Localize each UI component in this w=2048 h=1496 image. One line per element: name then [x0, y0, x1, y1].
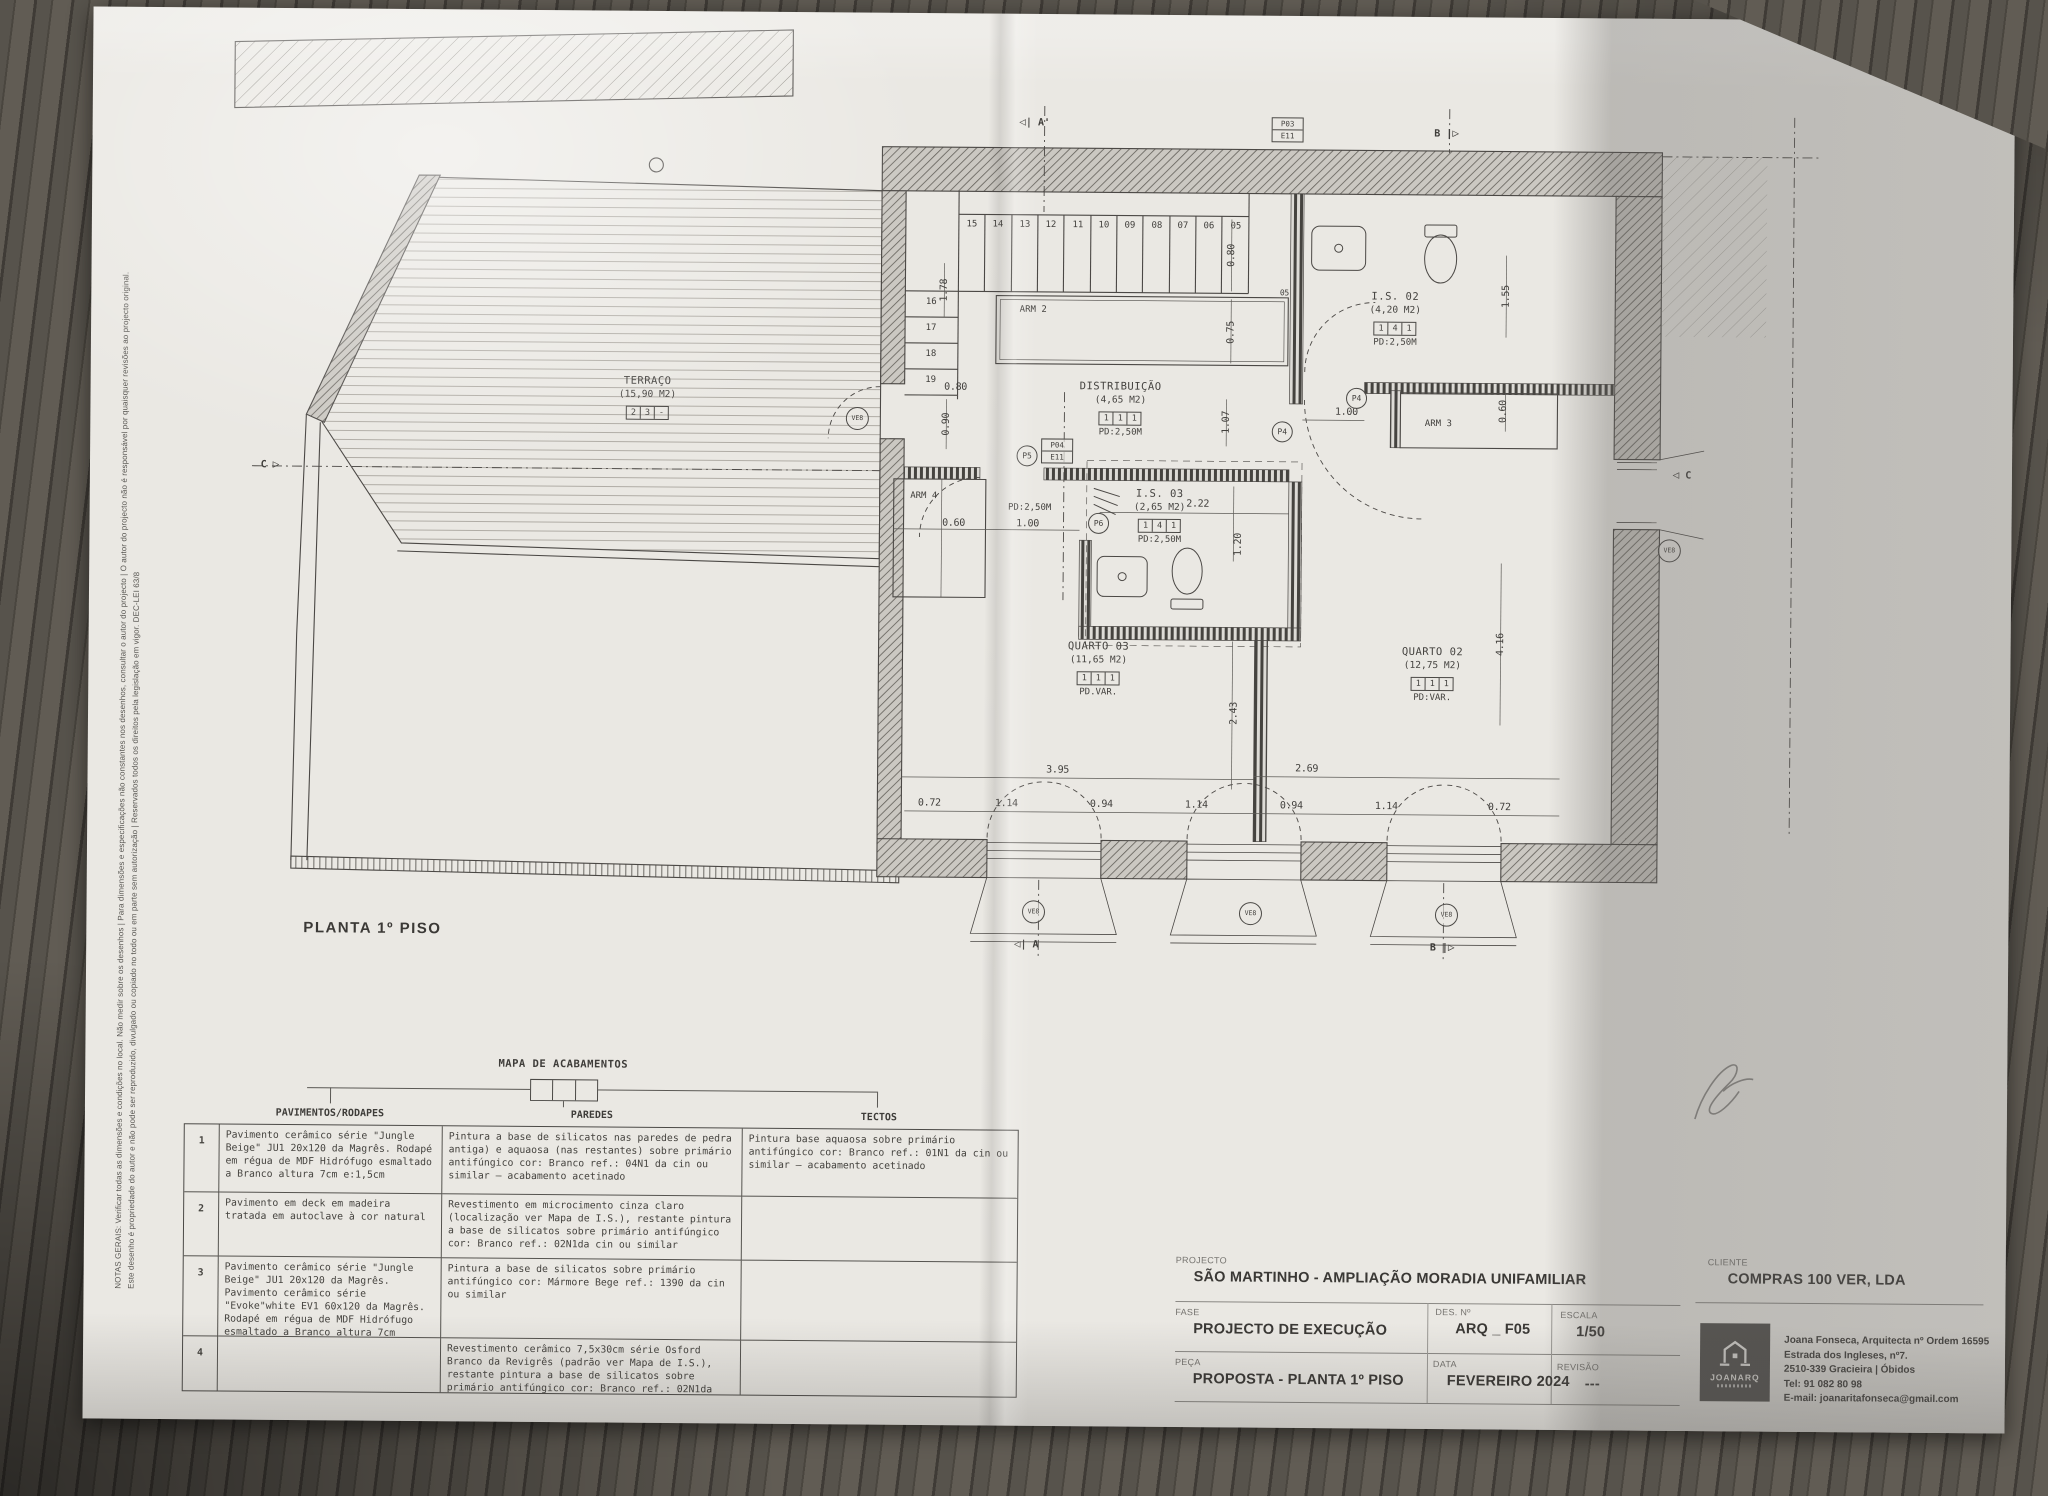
- cell-tectos: [741, 1341, 1016, 1397]
- row-number: 2: [184, 1192, 220, 1256]
- finishes-col-pavimentos: PAVIMENTOS/RODAPES: [276, 1107, 384, 1119]
- paper-sheet: NOTAS GERAIS: Verificar todas as dimensõ…: [82, 6, 2015, 1433]
- cell-paredes: Revestimento cerâmico 7,5x30cm série Osf…: [441, 1338, 741, 1394]
- dim-0.60-arm3: 0.60: [1498, 400, 1509, 423]
- tag-p04-e11: P04E11: [1041, 438, 1073, 463]
- tag-ve8: VE8: [1658, 539, 1681, 562]
- dim-1.07: 1.07: [1221, 411, 1232, 434]
- stair-tread-number: 07: [1177, 221, 1188, 231]
- titleblock-escala: ESCALA 1/50: [1560, 1310, 1605, 1340]
- row-number: 4: [183, 1336, 218, 1390]
- section-marker-b-top: B |▷: [1434, 127, 1459, 140]
- stair-tread-number: 13: [1019, 220, 1030, 230]
- finishes-title: MAPA DE ACABAMENTOS: [498, 1058, 628, 1071]
- stair-tread-number: 09: [1124, 221, 1135, 231]
- stair-tread-number: 15: [966, 219, 977, 229]
- revisao-value: ---: [1585, 1376, 1600, 1392]
- tag-ve8: VE8: [846, 407, 869, 430]
- contact-line: Estrada dos Ingleses, nº7.: [1784, 1348, 1994, 1364]
- stair-tread-number: 19: [925, 375, 936, 385]
- section-marker-a-bottom: ◁| A: [1014, 937, 1039, 950]
- dim-bottom-0: 0.72: [918, 797, 941, 808]
- dim-4.16: 4.16: [1495, 633, 1506, 656]
- titleblock-fase: FASE PROJECTO DE EXECUÇÃO: [1175, 1307, 1387, 1339]
- cell-pavimentos: Pavimento cerâmico série "Jungle Beige" …: [218, 1256, 442, 1338]
- closet-label-arm3: ARM 3: [1425, 419, 1452, 429]
- finish-codes: 111: [1099, 411, 1142, 425]
- titleblock-des: DES. Nº ARQ _ F05: [1435, 1307, 1530, 1338]
- stair-tread-number: 08: [1151, 221, 1162, 231]
- cell-pavimentos: Pavimento em deck em madeira tratada em …: [219, 1192, 442, 1258]
- plan-caption: PLANTA 1º PISO: [303, 919, 441, 937]
- des-value: ARQ _ F05: [1455, 1321, 1530, 1338]
- room-label-distribuicao: DISTRIBUIÇÃO (4,65 M2) 111 PD:2,50M: [1079, 380, 1161, 438]
- fase-value: PROJECTO DE EXECUÇÃO: [1193, 1321, 1387, 1339]
- tag-p4: P4: [1272, 421, 1293, 442]
- section-marker-a-top: ◁| A': [1019, 115, 1050, 128]
- finishes-col-paredes: PAREDES: [571, 1110, 613, 1121]
- dim-1.00-arm4: 1.00: [1016, 518, 1039, 529]
- closet-label-arm2: ARM 2: [1020, 305, 1047, 315]
- tag-p03-e11: P03E11: [1272, 117, 1304, 142]
- logo-tagline: [1717, 1384, 1753, 1387]
- architect-contact: Joana Fonseca, Arquitecta nº Ordem 16595…: [1784, 1334, 1995, 1408]
- dim-bottom-6: 0.72: [1488, 802, 1511, 813]
- cell-tectos: [742, 1197, 1017, 1263]
- client-name: COMPRAS 100 VER, LDA: [1728, 1271, 1906, 1288]
- stair-tread-number: 11: [1072, 220, 1083, 230]
- signature: [1665, 1053, 1786, 1149]
- titleblock-peca: PEÇA PROPOSTA - PLANTA 1º PISO: [1175, 1357, 1404, 1389]
- finishes-connector: [330, 1087, 331, 1103]
- dim-1.78: 1.78: [939, 279, 950, 302]
- finishes-connector: [877, 1092, 878, 1108]
- finish-codes: 141: [1374, 322, 1417, 336]
- dim-3.95: 3.95: [1046, 764, 1069, 775]
- data-value: FEVEREIRO 2024: [1447, 1373, 1570, 1390]
- room-label-quarto03: QUARTO 03 (11,65 M2) 111 PD.VAR.: [1067, 640, 1129, 697]
- row-number: 1: [184, 1124, 220, 1192]
- dim-bottom-3: 1.14: [1185, 800, 1208, 811]
- tag-ve8: VE8: [1239, 902, 1262, 925]
- finish-codes: 141: [1138, 519, 1181, 533]
- dim-0.90: 0.90: [941, 413, 952, 436]
- tag-p5: P5: [1016, 445, 1037, 466]
- peca-value: PROPOSTA - PLANTA 1º PISO: [1193, 1371, 1404, 1389]
- house-icon: [1715, 1338, 1755, 1370]
- dim-0.80-stair: 0.80: [1226, 244, 1237, 267]
- drawing-layer: NOTAS GERAIS: Verificar todas as dimensõ…: [82, 6, 2015, 1433]
- dim-bottom-4: 0.94: [1280, 800, 1303, 811]
- cell-tectos: Pintura base aquaosa sobre primário anti…: [742, 1129, 1018, 1199]
- stair-tread-number: 16: [926, 297, 937, 307]
- photo-of-floorplan: { "colors":{"wood":"#4a463f","paper":"#e…: [0, 0, 2048, 1496]
- finishes-legend-icon: [530, 1079, 598, 1102]
- cell-paredes: Pintura a base de silicatos nas paredes …: [442, 1126, 743, 1196]
- room-label-is03: I.S. 03 (2,65 M2) 141 PD:2,50M: [1134, 488, 1186, 545]
- dim-bottom-2: 0.94: [1090, 799, 1113, 810]
- room-label-quarto02: QUARTO 02 (12,75 M2) 111 PD:VAR.: [1401, 646, 1463, 703]
- tag-p6: P6: [1088, 513, 1109, 534]
- stair-tread-number: 17: [926, 323, 937, 333]
- stair-tread-number: 06: [1203, 221, 1214, 231]
- room-label-is02: I.S. 02 (4,20 M2) 141 PD:2,50M: [1369, 291, 1421, 348]
- dim-0.60-arm4: 0.60: [942, 518, 965, 529]
- finish-codes: 111: [1411, 677, 1454, 691]
- closet-label-arm4: ARM 4: [910, 491, 937, 501]
- dim-1.55: 1.55: [1501, 285, 1512, 308]
- escala-value: 1/50: [1576, 1324, 1605, 1340]
- contact-line: 2510-339 Gracieira | Óbidos: [1784, 1363, 1994, 1379]
- stair-tread-number: 10: [1098, 220, 1109, 230]
- finish-codes: 23-: [626, 406, 669, 420]
- joanarq-logo: JOANARQ: [1700, 1323, 1771, 1402]
- cell-paredes: Revestimento em microcimento cinza claro…: [442, 1194, 742, 1260]
- tag-ve8: VE8: [1435, 904, 1458, 927]
- cell-pavimentos: [218, 1336, 441, 1392]
- titleblock-revisao: REVISÃO ---: [1557, 1362, 1600, 1392]
- dim-2.69: 2.69: [1295, 763, 1318, 774]
- section-marker-c-left: C ▷: [261, 457, 280, 470]
- dim-0.80-door: 0.80: [944, 382, 967, 393]
- logo-wordmark: JOANARQ: [1710, 1372, 1760, 1382]
- stair-tread-number: 14: [992, 220, 1003, 230]
- dim-0.75: 0.75: [1225, 321, 1236, 344]
- room-label-terraco: TERRAÇO (15,90 M2) 23-: [619, 375, 677, 420]
- stair-tread-number: 12: [1045, 220, 1056, 230]
- titleblock-projecto: PROJECTO SÃO MARTINHO - AMPLIAÇÃO MORADI…: [1176, 1255, 1587, 1288]
- finish-codes: 111: [1077, 671, 1120, 685]
- dim-2.22: 2.22: [1186, 499, 1209, 510]
- cell-tectos: [741, 1261, 1017, 1343]
- finishes-col-tectos: TECTOS: [861, 1112, 897, 1123]
- contact-line: Tel: 91 082 80 98: [1784, 1377, 1994, 1393]
- contact-line: Joana Fonseca, Arquitecta nº Ordem 16595: [1784, 1334, 1994, 1350]
- tag-p4b: P4: [1346, 388, 1367, 409]
- row-number: 3: [183, 1256, 219, 1336]
- dim-2.43: 2.43: [1228, 702, 1239, 725]
- dim-bottom-5: 1.14: [1375, 801, 1398, 812]
- stair-tread-number: 18: [925, 349, 936, 359]
- section-marker-c-right: ◁ C: [1673, 468, 1692, 481]
- cell-pavimentos: Pavimento cerâmico série "Jungle Beige" …: [219, 1125, 443, 1195]
- dim-bottom-1: 1.14: [995, 798, 1018, 809]
- dim-1.20: 1.20: [1233, 533, 1244, 556]
- closet-arm4-pd: PD:2,50M: [1008, 503, 1051, 513]
- contact-line: E-mail: joanaritafonseca@gmail.com: [1784, 1392, 1994, 1408]
- dim-05: 05: [1280, 288, 1289, 297]
- titleblock-cliente: CLIENTE COMPRAS 100 VER, LDA: [1708, 1257, 1906, 1289]
- project-name: SÃO MARTINHO - AMPLIAÇÃO MORADIA UNIFAMI…: [1194, 1269, 1587, 1288]
- stair-tread-number: 05: [1230, 221, 1241, 231]
- cell-paredes: Pintura a base de silicatos sobre primár…: [441, 1258, 742, 1340]
- titleblock-data: DATA FEVEREIRO 2024: [1433, 1359, 1570, 1390]
- section-marker-b-bottom: B |▷: [1430, 940, 1455, 953]
- finishes-table: 1 Pavimento cerâmico série "Jungle Beige…: [182, 1123, 1019, 1398]
- tag-ve8: VE8: [1022, 900, 1045, 923]
